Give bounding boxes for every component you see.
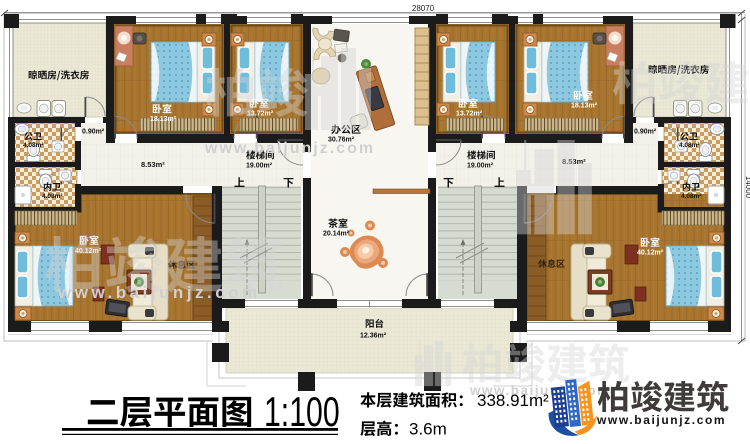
svg-text:0.90m²: 0.90m² bbox=[82, 129, 105, 136]
svg-text:19.00m²: 19.00m² bbox=[246, 163, 273, 170]
svg-text:20.14m²: 20.14m² bbox=[323, 231, 350, 238]
svg-text:13.72m²: 13.72m² bbox=[456, 111, 483, 118]
svg-text:28070: 28070 bbox=[412, 4, 435, 13]
svg-text:www.baijunjz.com: www.baijunjz.com bbox=[596, 413, 726, 427]
svg-text:www.baijunjz.com: www.baijunjz.com bbox=[57, 283, 261, 302]
svg-text:www.baijunjz.com: www.baijunjz.com bbox=[204, 140, 375, 157]
svg-text:18.13m²: 18.13m² bbox=[571, 103, 598, 110]
svg-text:18.13m²: 18.13m² bbox=[150, 116, 177, 123]
svg-text:40.12m²: 40.12m² bbox=[637, 250, 664, 257]
svg-text:14000: 14000 bbox=[744, 176, 750, 199]
svg-text:19.00m²: 19.00m² bbox=[467, 163, 494, 170]
svg-text:0.90m²: 0.90m² bbox=[634, 129, 657, 136]
svg-text:4.08m²: 4.08m² bbox=[679, 142, 700, 149]
svg-text:3.6m: 3.6m bbox=[409, 420, 447, 439]
svg-text:12.36m²: 12.36m² bbox=[360, 333, 387, 340]
svg-text:338.91m²: 338.91m² bbox=[477, 391, 549, 410]
svg-text:8.53m²: 8.53m² bbox=[141, 160, 165, 169]
svg-text:4.08m²: 4.08m² bbox=[681, 193, 702, 200]
svg-text:4.08m²: 4.08m² bbox=[23, 142, 44, 149]
svg-text:4.08m²: 4.08m² bbox=[42, 193, 63, 200]
